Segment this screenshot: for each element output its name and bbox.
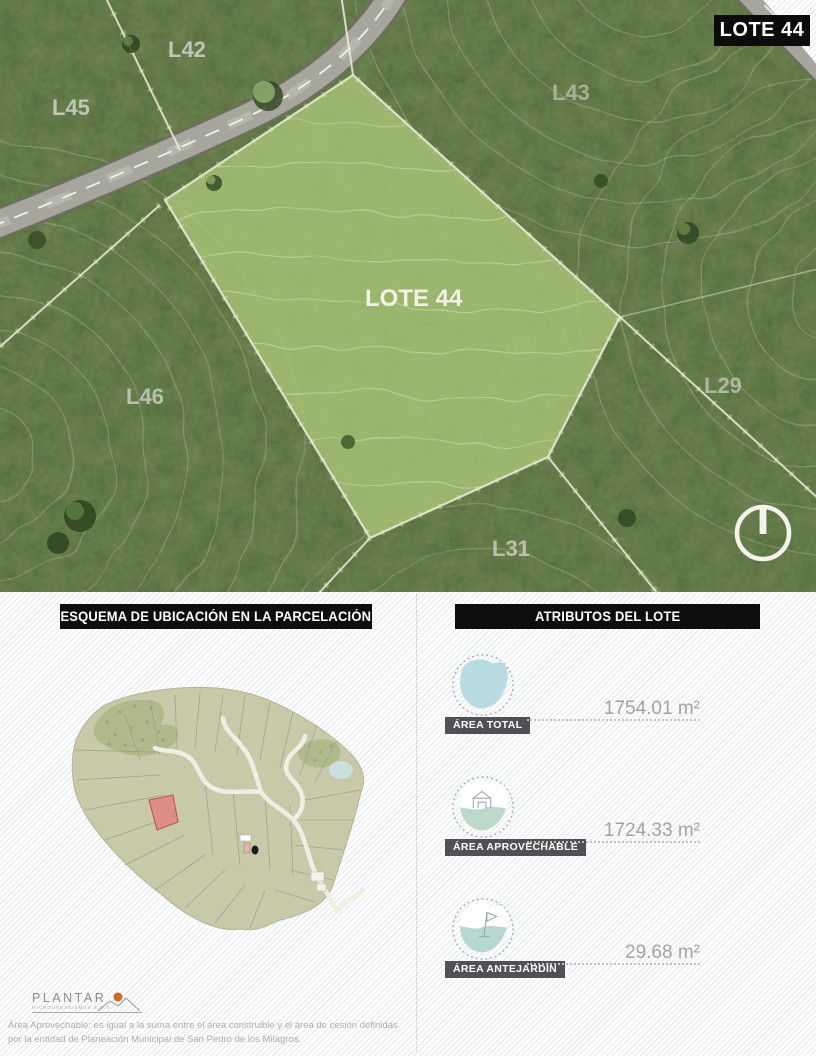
area-aprovechable-house-icon (450, 774, 516, 840)
lot-label-l29: L29 (704, 373, 742, 398)
attribute-row-area-antejardin: ÁREA ANTEJARDÍN 29.68 m² (447, 894, 737, 1016)
area-total-blob-icon (450, 652, 516, 718)
lot-label-l46: L46 (126, 384, 164, 409)
lot-label-lote44: LOTE 44 (365, 285, 463, 312)
attribute-row-area-total: ÁREA TOTAL 1754.01 m² (447, 650, 737, 772)
lot-label-l45: L45 (52, 95, 90, 120)
parcel-map (65, 640, 395, 940)
pond (329, 761, 353, 779)
section-divider (416, 594, 417, 1052)
attributes-list: ÁREA TOTAL 1754.01 m² (447, 650, 737, 1016)
attribute-row-area-aprovechable: ÁREA APROVECHABLE 1724.33 m² (447, 772, 737, 894)
lot-label-l42: L42 (168, 37, 206, 62)
lot-badge-label: LOTE 44 (720, 19, 805, 42)
location-panel-header: ESQUEMA DE UBICACIÓN EN LA PARCELACIÓN (60, 604, 372, 629)
attribute-label: ÁREA TOTAL (445, 717, 530, 734)
attribute-value: 1724.33 m² (604, 820, 700, 842)
area-antejardin-flag-icon (450, 896, 516, 962)
lot-label-l43: L43 (552, 80, 590, 105)
attributes-panel-header: ATRIBUTOS DEL LOTE (455, 604, 760, 629)
attributes-panel-header-label: ATRIBUTOS DEL LOTE (535, 609, 680, 624)
attribute-value: 29.68 m² (625, 942, 700, 964)
sun-icon (114, 993, 123, 1002)
parcel-map-svg (65, 640, 395, 940)
brand-name: PLANTAR (32, 991, 106, 1005)
aerial-photo: L42 L45 L43 LOTE 44 L46 L29 L31 (0, 0, 816, 592)
lot-badge: LOTE 44 (714, 15, 810, 46)
lot-sheet-page: L42 L45 L43 LOTE 44 L46 L29 L31 LOTE 44 … (0, 0, 816, 1056)
attribute-value: 1754.01 m² (604, 698, 700, 720)
lot-label-l31: L31 (492, 536, 530, 561)
plantar-logo: PLANTAR MICROURBANISMOS S.A.S. (30, 988, 160, 1018)
aerial-photo-svg: L42 L45 L43 LOTE 44 L46 L29 L31 (0, 0, 816, 592)
location-panel-header-label: ESQUEMA DE UBICACIÓN EN LA PARCELACIÓN (61, 609, 372, 624)
disclaimer-text: Área Aprovechable: es igual a la suma en… (8, 1019, 414, 1048)
